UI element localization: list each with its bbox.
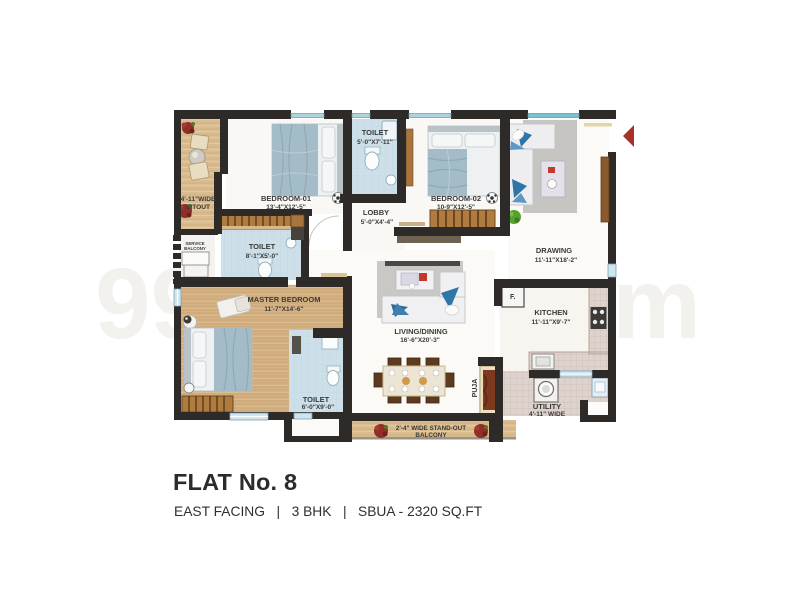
svg-text:4'-11"WIDE: 4'-11"WIDE	[181, 196, 216, 203]
svg-text:8'-1"X5'-0": 8'-1"X5'-0"	[246, 253, 278, 260]
svg-text:BALCONY: BALCONY	[184, 246, 206, 251]
svg-text:BALCONY: BALCONY	[415, 432, 447, 439]
svg-text:10-9"X12'-5": 10-9"X12'-5"	[437, 204, 475, 211]
svg-text:BEDROOM-01: BEDROOM-01	[261, 194, 311, 203]
svg-text:MASTER BEDROOM: MASTER BEDROOM	[248, 295, 321, 304]
svg-text:11'-7"X14'-6": 11'-7"X14'-6"	[264, 306, 303, 313]
svg-text:LIVING/DINING: LIVING/DINING	[394, 327, 448, 336]
svg-text:13'-4"X12'-5": 13'-4"X12'-5"	[266, 204, 306, 211]
svg-text:LOBBY: LOBBY	[363, 208, 389, 217]
svg-text:F.: F.	[510, 294, 516, 301]
svg-text:TOILET: TOILET	[249, 242, 276, 251]
svg-text:6'-0"X9'-0": 6'-0"X9'-0"	[302, 404, 334, 411]
svg-text:5'-0"X4'-4": 5'-0"X4'-4"	[361, 219, 393, 226]
svg-text:4'-11" WIDE: 4'-11" WIDE	[529, 411, 566, 418]
svg-text:UTILITY: UTILITY	[533, 402, 561, 411]
svg-text:TOILET: TOILET	[303, 395, 330, 404]
svg-text:11'-11"X18'-2": 11'-11"X18'-2"	[535, 257, 578, 264]
svg-text:EAST FACING | 3 BHK |: EAST FACING | 3 BHK | SBUA - 2320 SQ.FT	[174, 504, 483, 519]
svg-text:KITCHEN: KITCHEN	[534, 308, 567, 317]
svg-text:16'-6"X20'-3": 16'-6"X20'-3"	[400, 337, 440, 344]
svg-text:5'-0"X7'-11": 5'-0"X7'-11"	[357, 139, 393, 146]
svg-text:TOILET: TOILET	[362, 128, 389, 137]
svg-text:PUJA: PUJA	[472, 379, 479, 398]
svg-text:11'-11"X9'-7": 11'-11"X9'-7"	[532, 319, 571, 326]
svg-text:2'-4" WIDE STAND-OUT: 2'-4" WIDE STAND-OUT	[396, 425, 466, 432]
svg-text:DRAWING: DRAWING	[536, 246, 572, 255]
svg-text:SITOUT: SITOUT	[186, 204, 210, 211]
svg-text:FLAT No. 8: FLAT No. 8	[173, 469, 297, 495]
svg-text:BEDROOM-02: BEDROOM-02	[431, 194, 481, 203]
